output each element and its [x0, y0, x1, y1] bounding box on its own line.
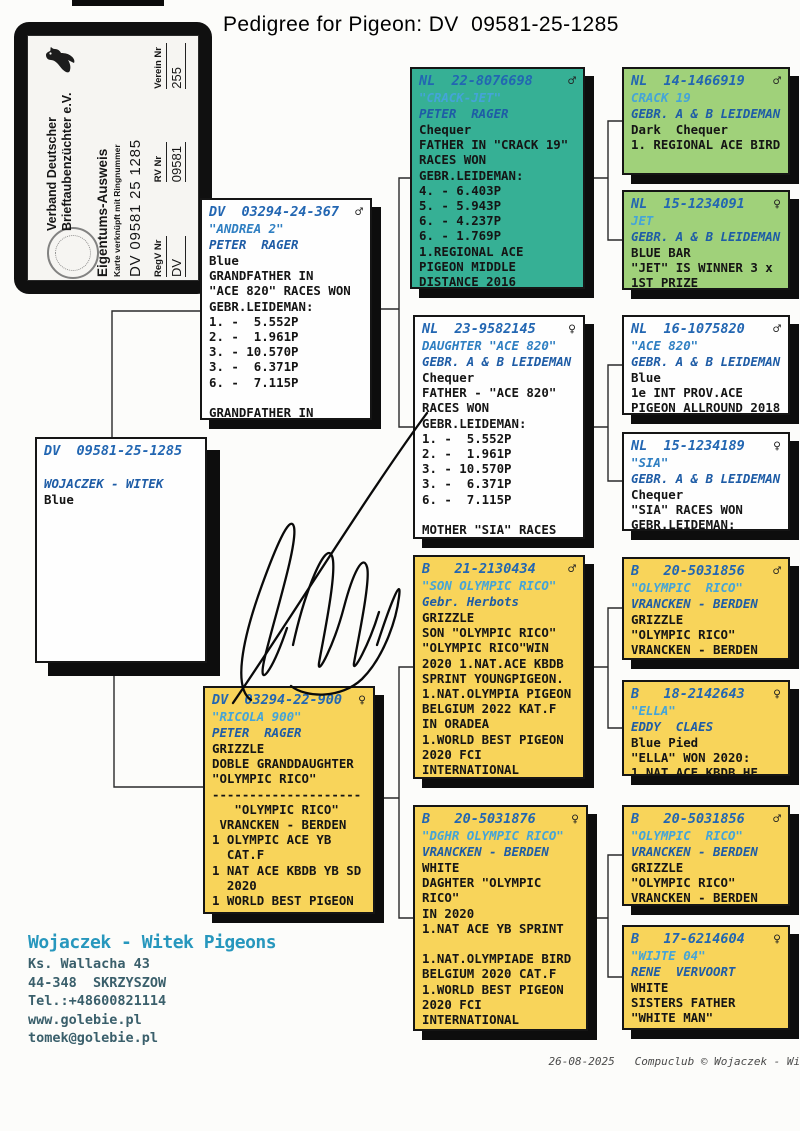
owner-name: PETER RAGER	[212, 725, 366, 741]
sex-symbol: ♂	[355, 204, 363, 221]
pigeon-details: Dark Chequer 1. REGIONAL ACE BIRD	[631, 122, 781, 152]
pedigree-box-ggf-2: ♂NL 16-1075820"ACE 820"GEBR. A & B LEIDE…	[622, 315, 790, 415]
ring-number: B 21-2130434	[422, 561, 536, 577]
ring-number: NL 15-1234189	[631, 438, 745, 454]
owner-name: PETER RAGER	[209, 237, 363, 253]
ring-number: NL 23-9582145	[422, 321, 536, 337]
pigeon-details: WHITE DAGHTER "OLYMPIC RICO" IN 2020 1.N…	[422, 860, 579, 1027]
sex-symbol: ♂	[773, 811, 781, 828]
ring-number: NL 15-1234091	[631, 196, 745, 212]
owner-name: GEBR. A & B LEIDEMAN	[631, 354, 781, 370]
sex-symbol: ♂	[773, 73, 781, 90]
pedigree-box-grandfather-maternal: ♂B 21-2130434"SON OLYMPIC RICO"Gebr. Her…	[413, 555, 585, 779]
pigeon-details: GRIZZLE "OLYMPIC RICO" VRANCKEN - BERDEN	[631, 860, 781, 906]
pigeon-details: Blue	[44, 492, 198, 507]
sex-symbol: ♂	[773, 321, 781, 338]
owner-name: EDDY CLAES	[631, 719, 781, 735]
owner-name: GEBR. A & B LEIDEMAN	[631, 471, 781, 487]
pedigree-box-ggm-2: ♀NL 15-1234189"SIA"GEBR. A & B LEIDEMANC…	[622, 432, 790, 531]
pedigree-box-ggm-4: ♀B 17-6214604"WIJTE 04"RENE VERVOORTWHIT…	[622, 925, 790, 1030]
ring-number-row: ♂NL 22-8076698	[419, 73, 576, 90]
ring-number: DV 03294-22-900	[212, 692, 342, 708]
owner-name: GEBR. A & B LEIDEMAN	[631, 229, 781, 245]
ring-number-row: DV 09581-25-1285	[44, 443, 198, 460]
pigeon-name: "DGHR OLYMPIC RICO"	[422, 828, 579, 844]
pigeon-name: CRACK 19	[631, 90, 781, 106]
pigeon-details: WHITE SISTERS FATHER "WHITE MAN"	[631, 980, 781, 1026]
ring-number-row: ♀DV 03294-22-900	[212, 692, 366, 709]
pigeon-details: BLUE BAR "JET" IS WINNER 3 x 1ST PRIZE	[631, 245, 781, 290]
pedigree-box-subject: DV 09581-25-1285WOJACZEK - WITEKBlue	[35, 437, 207, 663]
ring-number: NL 22-8076698	[419, 73, 533, 89]
pigeon-name: "OLYMPIC RICO"	[631, 828, 781, 844]
pigeon-name: "SON OLYMPIC RICO"	[422, 578, 576, 594]
ring-number-row: ♀B 20-5031876	[422, 811, 579, 828]
pedigree-box-ggm-1: ♀NL 15-1234091JETGEBR. A & B LEIDEMANBLU…	[622, 190, 790, 290]
pedigree-box-father: ♂DV 03294-24-367"ANDREA 2"PETER RAGERBlu…	[200, 198, 372, 420]
sex-symbol: ♀	[773, 196, 781, 213]
owner-name: Gebr. Herbots	[422, 594, 576, 610]
ring-number: DV 03294-24-367	[209, 204, 339, 220]
pigeon-details: Chequer FATHER - "ACE 820" RACES WON GEB…	[422, 370, 576, 537]
sex-symbol: ♀	[773, 931, 781, 948]
ring-number-row: ♂DV 03294-24-367	[209, 204, 363, 221]
pigeon-name: "RICOLA 900"	[212, 709, 366, 725]
owner-name: VRANCKEN - BERDEN	[631, 844, 781, 860]
ring-number-row: ♀B 18-2142643	[631, 686, 781, 703]
pigeon-name	[44, 460, 198, 476]
sex-symbol: ♂	[568, 73, 576, 90]
sex-symbol: ♀	[773, 438, 781, 455]
ring-number-row: ♀NL 23-9582145	[422, 321, 576, 338]
pedigree-box-ggm-3: ♀B 18-2142643"ELLA"EDDY CLAESBlue Pied "…	[622, 680, 790, 776]
pigeon-details: GRIZZLE "OLYMPIC RICO" VRANCKEN - BERDEN	[631, 612, 781, 658]
pigeon-details: Chequer "SIA" RACES WON GEBR.LEIDEMAN:	[631, 487, 781, 531]
pigeon-details: Blue Pied "ELLA" WON 2020: 1.NAT.ACE KBD…	[631, 735, 781, 776]
ring-number-row: ♂NL 14-1466919	[631, 73, 781, 90]
ring-number: NL 14-1466919	[631, 73, 745, 89]
pigeon-name: "ANDREA 2"	[209, 221, 363, 237]
ring-number: DV 09581-25-1285	[44, 443, 182, 459]
ring-number-row: ♀NL 15-1234091	[631, 196, 781, 213]
pigeon-name: "SIA"	[631, 455, 781, 471]
pigeon-name: "OLYMPIC RICO"	[631, 580, 781, 596]
pedigree-box-ggf-3: ♂B 20-5031856"OLYMPIC RICO"VRANCKEN - BE…	[622, 557, 790, 660]
sex-symbol: ♀	[568, 321, 576, 338]
ring-number-row: ♂NL 16-1075820	[631, 321, 781, 338]
pigeon-name: "ACE 820"	[631, 338, 781, 354]
sex-symbol: ♂	[773, 563, 781, 580]
pigeon-details: Blue GRANDFATHER IN "ACE 820" RACES WON …	[209, 253, 363, 420]
pigeon-name: JET	[631, 213, 781, 229]
owner-name: WOJACZEK - WITEK	[44, 476, 198, 492]
owner-name: VRANCKEN - BERDEN	[422, 844, 579, 860]
pedigree-box-grandmother-paternal: ♀NL 23-9582145DAUGHTER "ACE 820"GEBR. A …	[413, 315, 585, 539]
ring-number-row: ♀NL 15-1234189	[631, 438, 781, 455]
ring-number: NL 16-1075820	[631, 321, 745, 337]
owner-name: VRANCKEN - BERDEN	[631, 596, 781, 612]
pedigree-document: Pedigree for Pigeon: DV 09581-25-1285 Ve…	[0, 0, 800, 1131]
pigeon-details: Blue 1e INT PROV.ACE PIGEON ALLROUND 201…	[631, 370, 781, 415]
ring-number: B 20-5031856	[631, 563, 745, 579]
pedigree-box-grandfather-paternal: ♂NL 22-8076698"CRACK-JET"PETER RAGERCheq…	[410, 67, 585, 289]
pigeon-name: "CRACK-JET"	[419, 90, 576, 106]
pedigree-box-ggf-4: ♂B 20-5031856"OLYMPIC RICO"VRANCKEN - BE…	[622, 805, 790, 906]
ring-number: B 20-5031856	[631, 811, 745, 827]
sex-symbol: ♀	[571, 811, 579, 828]
pigeon-name: "WIJTE 04"	[631, 948, 781, 964]
pedigree-box-ggf-1: ♂NL 14-1466919CRACK 19GEBR. A & B LEIDEM…	[622, 67, 790, 175]
pigeon-details: GRIZZLE SON "OLYMPIC RICO" "OLYMPIC RICO…	[422, 610, 576, 777]
pigeon-details: GRIZZLE DOBLE GRANDDAUGHTER "OLYMPIC RIC…	[212, 741, 366, 908]
sex-symbol: ♀	[358, 692, 366, 709]
pigeon-details: Chequer FATHER IN "CRACK 19" RACES WON G…	[419, 122, 576, 289]
pedigree-box-mother: ♀DV 03294-22-900"RICOLA 900"PETER RAGERG…	[203, 686, 375, 914]
pigeon-name: "ELLA"	[631, 703, 781, 719]
sex-symbol: ♀	[773, 686, 781, 703]
pedigree-box-grandmother-maternal: ♀B 20-5031876"DGHR OLYMPIC RICO"VRANCKEN…	[413, 805, 588, 1031]
owner-name: GEBR. A & B LEIDEMAN	[422, 354, 576, 370]
ring-number: B 18-2142643	[631, 686, 745, 702]
owner-name: GEBR. A & B LEIDEMAN	[631, 106, 781, 122]
ring-number-row: ♀B 17-6214604	[631, 931, 781, 948]
sex-symbol: ♂	[568, 561, 576, 578]
ring-number-row: ♂B 20-5031856	[631, 563, 781, 580]
ring-number-row: ♂B 21-2130434	[422, 561, 576, 578]
owner-name: RENE VERVOORT	[631, 964, 781, 980]
owner-name: PETER RAGER	[419, 106, 576, 122]
ring-number: B 17-6214604	[631, 931, 745, 947]
ring-number-row: ♂B 20-5031856	[631, 811, 781, 828]
ring-number: B 20-5031876	[422, 811, 536, 827]
pigeon-name: DAUGHTER "ACE 820"	[422, 338, 576, 354]
